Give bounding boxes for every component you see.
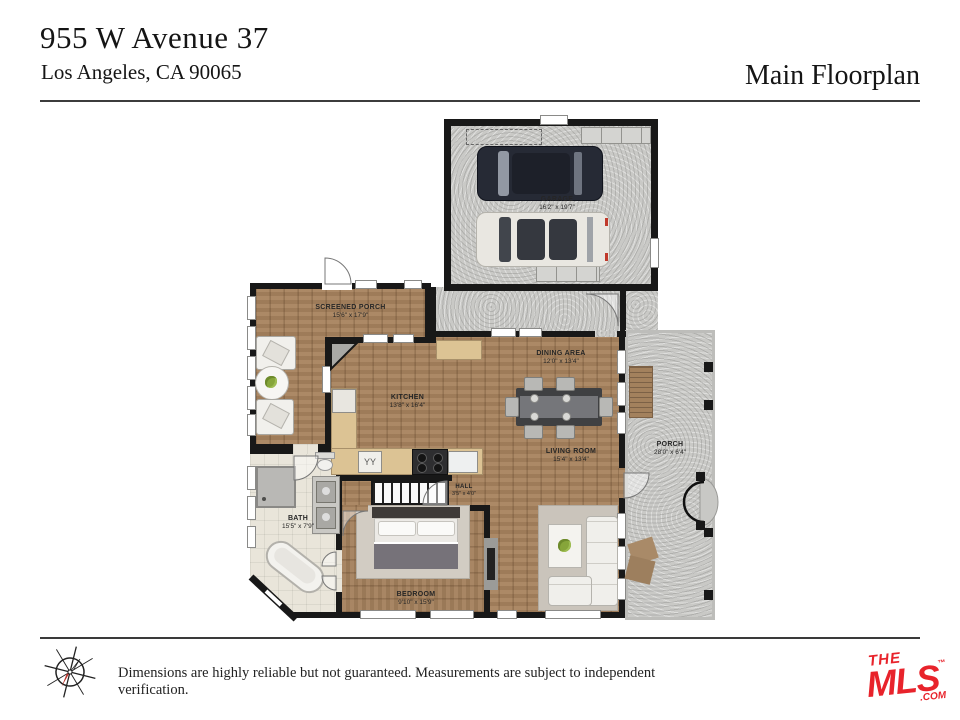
window	[650, 238, 659, 268]
toilet	[315, 452, 335, 459]
toilet	[317, 459, 333, 471]
kitchen-counter	[436, 340, 482, 360]
window	[519, 328, 542, 337]
window	[617, 412, 626, 434]
burner	[417, 453, 427, 463]
window	[247, 326, 256, 350]
address-line1: 955 W Avenue 37	[40, 20, 269, 56]
dining-table	[516, 388, 602, 426]
door-opening	[342, 505, 368, 511]
header-divider	[40, 100, 920, 102]
car-taillight	[605, 218, 608, 226]
door-opening	[336, 550, 342, 592]
garage-door-opening	[540, 115, 568, 125]
porch-post	[704, 400, 713, 410]
window	[247, 356, 256, 380]
sectional-sofa	[548, 576, 592, 606]
burner	[417, 463, 427, 473]
porch-post	[704, 590, 713, 600]
room-label-screened-porch: SCREENED PORCH 15'6" x 17'9"	[288, 304, 413, 319]
car-rear-window	[587, 217, 593, 262]
room-label-dining-area: DINING AREA 12'0" x 13'4"	[506, 350, 616, 365]
disclaimer-text: Dimensions are highly reliable but not g…	[118, 665, 718, 699]
window	[247, 386, 256, 410]
car-taillight	[605, 253, 608, 261]
porch-post	[704, 528, 713, 537]
window	[617, 513, 626, 539]
bed-blanket	[374, 542, 458, 569]
porch-post	[704, 362, 713, 372]
window	[363, 334, 388, 343]
pillow	[378, 521, 416, 536]
room-label-bedroom: BEDROOM 9'10" x 15'9"	[360, 591, 472, 606]
dining-chair	[524, 377, 543, 391]
window	[247, 496, 256, 520]
porch-bench	[629, 366, 653, 418]
window	[430, 610, 474, 619]
suv-car	[477, 146, 603, 201]
door-opening	[618, 468, 625, 498]
glass-cabinet: YY	[358, 451, 382, 473]
dining-chair	[524, 425, 543, 439]
bed-headboard	[372, 507, 460, 518]
car-roof	[512, 153, 570, 194]
garage-storage-outline	[466, 129, 542, 145]
porch-post	[704, 508, 713, 517]
armchair	[256, 399, 294, 435]
car-windshield	[499, 217, 511, 262]
sink	[316, 481, 336, 503]
pillow	[417, 521, 455, 536]
armchair	[256, 336, 296, 370]
plate	[562, 394, 571, 403]
window	[617, 546, 626, 570]
window	[545, 610, 601, 619]
window	[617, 578, 626, 600]
plate	[562, 412, 571, 421]
kitchen-sink	[448, 451, 478, 473]
shower	[256, 466, 296, 508]
window	[491, 328, 516, 337]
tv-icon	[487, 548, 495, 580]
window	[497, 610, 517, 619]
plate	[530, 394, 539, 403]
door-opening	[322, 281, 352, 290]
window	[404, 280, 422, 289]
room-label-bath: BATH 15'5" x 7'9"	[258, 515, 338, 530]
compass-icon	[42, 644, 98, 700]
car-window	[549, 219, 577, 260]
window	[393, 334, 414, 343]
dining-chair	[556, 377, 575, 391]
room-label-hall: HALL 3'5" x 4'0"	[440, 484, 488, 497]
stove	[412, 449, 448, 475]
garage-cabinets-top	[581, 127, 651, 144]
car-rear-window	[574, 152, 582, 195]
plate	[530, 412, 539, 421]
car-window	[517, 219, 545, 260]
door-opening	[595, 330, 617, 337]
shower-drain	[262, 497, 266, 501]
address-line2: Los Angeles, CA 90065	[41, 60, 242, 85]
room-label-kitchen: KITCHEN 13'8" x 16'4"	[355, 394, 460, 409]
window	[247, 526, 256, 548]
dining-chair	[599, 397, 613, 417]
window	[247, 414, 256, 436]
garage-apron	[626, 287, 658, 331]
page-title: Main Floorplan	[745, 60, 920, 92]
window	[322, 366, 331, 393]
burner	[433, 463, 443, 473]
mls-logo: THE MLS™ .COM	[863, 646, 948, 709]
floorplan-page: { "header": { "address_line1": "955 W Av…	[0, 0, 960, 720]
staircase	[371, 481, 449, 505]
burner	[433, 453, 443, 463]
window	[360, 610, 416, 619]
white-car	[476, 212, 610, 267]
dining-chair	[505, 397, 519, 417]
footer-divider	[40, 637, 920, 639]
chair-cushion	[262, 403, 290, 429]
room-label-garage: GARAGE 16'2" x 19'7"	[500, 196, 614, 211]
dining-chair	[556, 425, 575, 439]
refrigerator	[332, 389, 356, 413]
chair-cushion	[262, 340, 290, 366]
room-label-porch: PORCH 28'0" x 6'4"	[632, 441, 708, 456]
window	[617, 350, 626, 374]
car-windshield	[498, 151, 509, 196]
window	[617, 382, 626, 406]
room-label-living-room: LIVING ROOM 15'4" x 13'4"	[516, 448, 626, 463]
window	[247, 296, 256, 320]
window	[247, 466, 256, 490]
window	[355, 280, 377, 289]
